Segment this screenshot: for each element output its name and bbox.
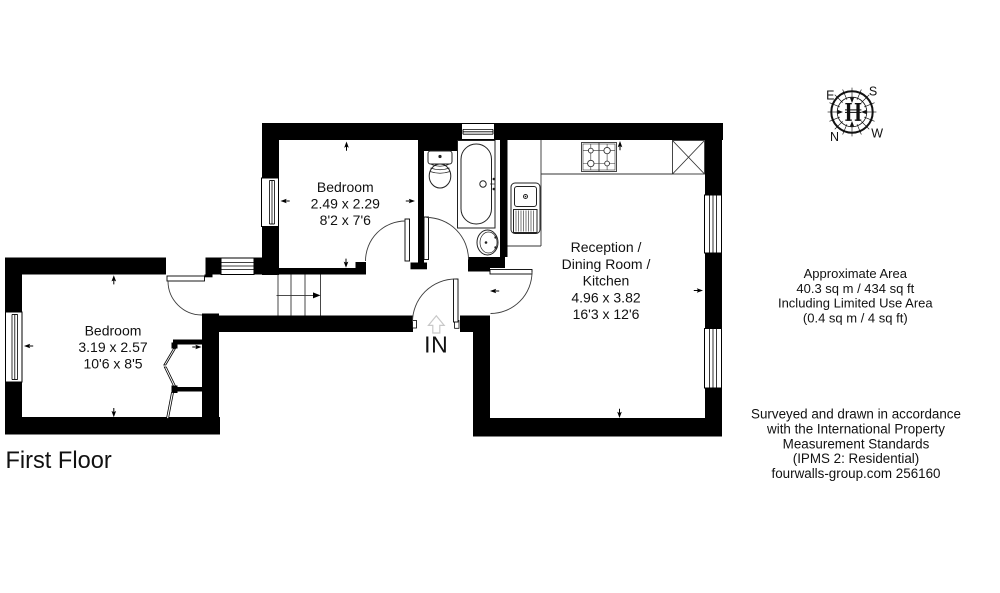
svg-text:16'3 x 12'6: 16'3 x 12'6 — [573, 306, 640, 322]
svg-text:fourwalls-group.com 256160: fourwalls-group.com 256160 — [772, 466, 941, 481]
svg-text:3.19 x 2.57: 3.19 x 2.57 — [78, 339, 147, 355]
svg-text:Bedroom: Bedroom — [317, 179, 374, 195]
svg-text:(0.4 sq m / 4 sq ft): (0.4 sq m / 4 sq ft) — [803, 311, 908, 326]
svg-text:Kitchen: Kitchen — [583, 273, 630, 289]
svg-text:Including Limited Use Area: Including Limited Use Area — [778, 296, 933, 311]
svg-text:10'6 x 8'5: 10'6 x 8'5 — [83, 356, 142, 372]
svg-text:Surveyed and drawn in accordan: Surveyed and drawn in accordance — [751, 407, 961, 422]
svg-text:Measurement Standards: Measurement Standards — [783, 436, 930, 451]
svg-text:First Floor: First Floor — [6, 448, 112, 474]
svg-text:S: S — [869, 85, 877, 99]
svg-text:40.3 sq m / 434 sq ft: 40.3 sq m / 434 sq ft — [796, 281, 914, 296]
svg-text:(IPMS 2: Residential): (IPMS 2: Residential) — [793, 451, 920, 466]
svg-text:4.96 x 3.82: 4.96 x 3.82 — [571, 289, 640, 305]
svg-text:Reception /: Reception / — [571, 239, 642, 255]
svg-text:IN: IN — [424, 332, 448, 358]
svg-text:Bedroom: Bedroom — [85, 322, 142, 338]
svg-text:2.49 x 2.29: 2.49 x 2.29 — [311, 195, 380, 211]
svg-text:W: W — [871, 127, 883, 141]
svg-text:Dining Room /: Dining Room / — [562, 256, 651, 272]
svg-text:8'2 x 7'6: 8'2 x 7'6 — [320, 212, 371, 228]
svg-text:Approximate Area: Approximate Area — [804, 266, 908, 281]
svg-text:E: E — [826, 88, 834, 102]
svg-text:N: N — [830, 130, 839, 144]
svg-text:with the International Propert: with the International Property — [766, 421, 945, 436]
